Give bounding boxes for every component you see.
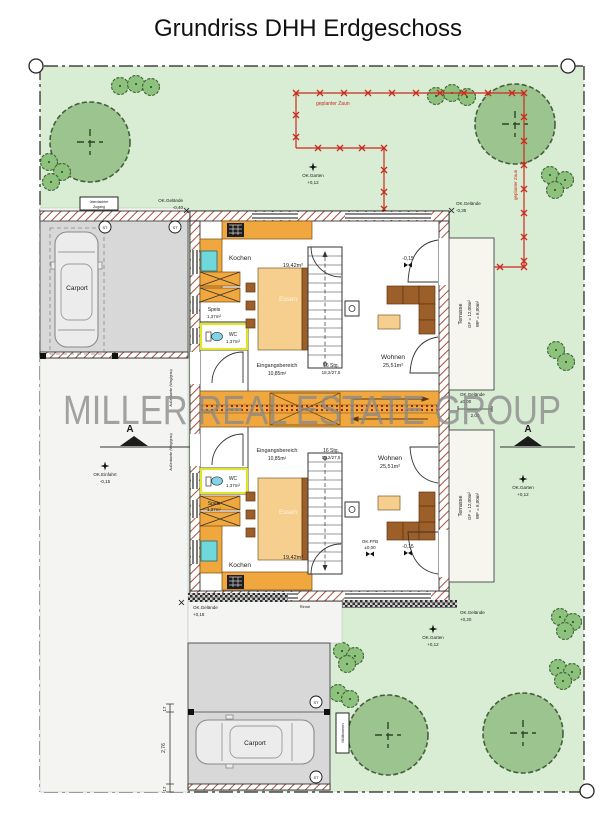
stairs-label-bottom: 16 Stg.	[323, 448, 339, 454]
area-speis-bottom: 1,37m²	[207, 507, 222, 512]
st-marker-3: ST	[310, 696, 322, 708]
area-wc-bottom: 1,37m²	[226, 483, 241, 488]
svg-text:-0,15: -0,15	[100, 479, 111, 484]
svg-text:überdachter: überdachter	[90, 200, 110, 204]
stairs-dim-bottom: 18,2/27,5	[322, 455, 341, 460]
carport-top: Carport ST ST überdachter Zugang	[40, 197, 190, 359]
room-essen-bottom: Essen	[279, 509, 297, 516]
toilet-bottom	[212, 477, 223, 485]
stairs-top	[308, 247, 342, 368]
ffb-value: ±0,00	[364, 545, 376, 550]
coffee-table-bottom	[378, 496, 400, 510]
terrace-bottom-wf: WF = 6,00m²	[475, 492, 480, 519]
sink-bottom	[201, 541, 217, 561]
st-marker-4: ST	[310, 771, 322, 783]
svg-text:OK.Einfahrt: OK.Einfahrt	[93, 472, 117, 477]
chimney-top	[345, 301, 359, 316]
svg-text:ST: ST	[172, 225, 178, 230]
room-wc-top: WC	[229, 332, 238, 338]
svg-text:Zugang: Zugang	[93, 205, 105, 209]
svg-text:ST: ST	[313, 700, 319, 705]
walkway-strip-left	[188, 593, 288, 602]
room-essen-top: Essen	[279, 296, 297, 303]
svg-text:+0,12: +0,12	[427, 642, 439, 647]
svg-text:OK.Gelände: OK.Gelände	[158, 198, 183, 203]
stairs-label-top: 16 Stg.	[323, 363, 339, 369]
area-eingang-top: 10,85m²	[268, 371, 287, 377]
room-wc-bottom: WC	[229, 476, 238, 482]
covered-entry-sign: überdachter Zugang	[80, 197, 118, 210]
svg-text:OK.Garten: OK.Garten	[422, 635, 444, 640]
svg-text:OK.Gelände: OK.Gelände	[456, 201, 481, 206]
side-note-2: Außenkante (Weg/grau)	[169, 433, 173, 470]
room-speis-top: Speis	[208, 307, 221, 313]
muelltonnen-sign: Mülltonnen	[336, 713, 349, 753]
terrace-bottom-name: Terrasse	[458, 495, 464, 516]
level-bottom: -0,15	[402, 544, 414, 550]
dim-276: 2,76	[161, 743, 167, 753]
page-title: Grundriss DHH Erdgeschoss	[154, 15, 462, 42]
svg-text:+0,12: +0,12	[307, 180, 319, 185]
terrace-top-name: Terrasse	[458, 303, 464, 324]
svg-text:OK.Garten: OK.Garten	[512, 485, 534, 490]
level-top: -0,15	[402, 256, 414, 262]
carport-bottom-label: Carport	[244, 740, 266, 747]
room-eingang-bottom: Eingangsbereich	[257, 448, 298, 454]
dim-17b: 17	[162, 786, 167, 792]
rinne-label: Rinne	[300, 604, 311, 609]
carport-top-label: Carport	[66, 285, 88, 292]
area-kochen-top: 19,42m²	[283, 263, 303, 269]
svg-text:-0,35: -0,35	[456, 208, 467, 213]
ffb-label: OK.FFB	[362, 539, 378, 544]
site-plan: Grundriss DHH Erdgeschoss geplanter Zaun…	[0, 0, 616, 820]
sink-top	[201, 251, 217, 271]
svg-text:Mülltonnen: Mülltonnen	[340, 723, 345, 743]
stairs-bottom	[308, 453, 342, 574]
walkway-strip-right	[342, 600, 457, 608]
floorplan-page: Grundriss DHH Erdgeschoss geplanter Zaun…	[0, 0, 616, 820]
tree-bottom-right	[483, 693, 563, 773]
area-speis-top: 1,37m²	[207, 314, 222, 319]
room-wohnen-top: Wohnen	[381, 354, 405, 361]
svg-text:ST: ST	[102, 225, 108, 230]
terrace-top-gf: GF = 12,00m²	[467, 300, 472, 328]
room-eingang-top: Eingangsbereich	[257, 363, 298, 369]
area-wohnen-top: 25,51m²	[383, 363, 403, 369]
dim-17a: 17	[162, 706, 167, 712]
room-kochen-top: Kochen	[229, 255, 251, 262]
svg-text:+0,20: +0,20	[460, 617, 472, 622]
fence-label-vertical: geplanter Zaun	[513, 169, 518, 200]
svg-text:+0,18: +0,18	[193, 612, 205, 617]
area-kochen-bottom: 19,42m²	[283, 555, 303, 561]
tree-bottom-center	[348, 695, 428, 775]
area-eingang-bottom: 10,85m²	[268, 456, 287, 462]
terrace-bottom-gf: GF = 12,00m²	[467, 492, 472, 520]
svg-text:OK.Garten: OK.Garten	[302, 173, 324, 178]
svg-text:-0,40: -0,40	[173, 205, 184, 210]
area-wohnen-bottom: 25,51m²	[380, 464, 400, 470]
watermark: MILLER REAL ESTATE GROUP	[63, 387, 561, 433]
carport-bottom: Carport ST ST Mülltonnen	[188, 643, 349, 790]
svg-text:OK.Gelände: OK.Gelände	[460, 610, 485, 615]
st-marker-1: ST	[99, 221, 111, 233]
room-kochen-bottom: Kochen	[229, 562, 251, 569]
room-wohnen-bottom: Wohnen	[378, 455, 402, 462]
toilet-top	[212, 332, 223, 340]
terrace-top: Terrasse GF = 12,00m² WF = 6,00m²	[449, 238, 494, 390]
terrace-top-wf: WF = 6,00m²	[475, 300, 480, 327]
svg-text:OK.Gelände: OK.Gelände	[193, 605, 218, 610]
st-marker-2: ST	[169, 221, 181, 233]
coffee-table-top	[378, 315, 400, 329]
svg-text:ST: ST	[313, 775, 319, 780]
stairs-dim-top: 18,2/27,5	[322, 370, 341, 375]
chimney-bottom	[345, 502, 359, 517]
terrace-bottom: Terrasse GF = 12,00m² WF = 6,00m²	[449, 430, 494, 582]
area-wc-top: 1,37m²	[226, 339, 241, 344]
fence-label: geplanter Zaun	[316, 101, 350, 107]
svg-text:+0,12: +0,12	[517, 492, 529, 497]
